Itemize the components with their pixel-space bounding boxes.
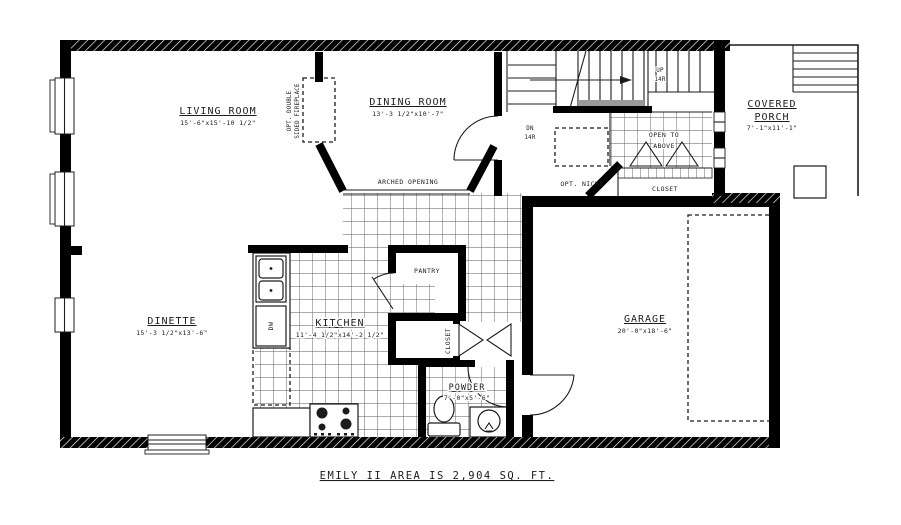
floor-plan-sheet: DW (0, 0, 901, 525)
hall-left-wall (494, 160, 502, 196)
stairs-up-risers: 14R (654, 77, 665, 83)
powder-dims: 7'-0"x5'-6" (444, 394, 490, 402)
foyer-closet-jamb-top (453, 313, 460, 324)
garage-left-wall-lower (522, 415, 533, 437)
garage-label: GARAGE (624, 314, 666, 325)
stair-lower-wall (553, 106, 652, 113)
garage-left-wall-upper (522, 196, 533, 375)
fireplace-label-line1: OPT. DOUBLE (287, 90, 293, 131)
floor-plan-drawing: DW (0, 0, 901, 525)
dinette-dims: 15'-3 1/2"x13'-6" (136, 329, 208, 337)
kitchen-top-wall (248, 245, 348, 253)
kitchen-counter-bottom (253, 408, 310, 437)
kitchen-label: KITCHEN (315, 318, 364, 329)
living-room-window-2 (50, 172, 74, 226)
dining-left-wall (315, 52, 323, 82)
dining-right-wall (494, 52, 502, 116)
opt-niche-label: OPT. NICHE (560, 180, 603, 188)
kitchen-dims: 11'-4 1/2"x14'-2 1/2" (296, 331, 384, 339)
sink-drain-top (270, 267, 273, 270)
living-room-dims: 15'-6"x15'-10 1/2" (180, 119, 256, 127)
pantry-left-wall-upper (388, 245, 396, 273)
powder-left-wall (418, 360, 426, 437)
garage-right-wall (769, 196, 780, 448)
covered-porch-label-line1: COVERED (747, 99, 796, 110)
living-room-label: LIVING ROOM (179, 106, 256, 117)
pantry-right-wall (458, 245, 466, 321)
covered-porch-label-line2: PORCH (754, 112, 789, 123)
powder-label: POWDER (449, 383, 486, 393)
dinette-bottom-window (145, 435, 209, 454)
top-exterior-wall (60, 40, 730, 51)
porch-column (794, 166, 826, 198)
open-to-above-line2: ABOVE (653, 142, 675, 150)
dinette-side-window (55, 298, 74, 332)
fireplace-label-line2: SIDED FIREPLACE (295, 83, 301, 139)
dinette-label: DINETTE (147, 316, 196, 327)
dining-room-dims: 13'-3 1/2"x10'-7" (372, 110, 444, 118)
foyer-closet-left-wall (388, 313, 396, 365)
porch-window-2 (714, 148, 725, 168)
open-to-above-tile-floor (610, 112, 712, 168)
stove-burner-small-1 (319, 424, 326, 431)
stove (310, 404, 358, 437)
pantry-top-wall (388, 245, 466, 253)
stairs-dn-risers: 14R (524, 135, 535, 141)
vanity-basin (478, 410, 500, 432)
covered-porch-dims: 7'-1"x11'-1" (747, 124, 798, 132)
hall-closet-shelf (618, 168, 712, 178)
dining-room-label: DINING ROOM (369, 97, 446, 108)
stairs-dn-label: DN (526, 126, 534, 132)
porch-window-1 (714, 112, 725, 132)
dishwasher-label: DW (267, 322, 275, 331)
sink-drain-bottom (270, 289, 273, 292)
stove-burner-large-2 (341, 419, 352, 430)
stairs-up-label: UP (656, 68, 664, 74)
corridor-tile-floor (343, 193, 522, 253)
foyer-tile-floor (460, 253, 522, 322)
open-to-above-line1: OPEN TO (649, 131, 679, 139)
hall-closet-label: CLOSET (652, 185, 678, 193)
plan-title: EMILY II AREA IS 2,904 SQ. FT. (320, 470, 555, 482)
garage-dims: 20'-0"x18'-6" (618, 327, 673, 335)
toilet-tank (428, 423, 460, 436)
arched-opening-label: ARCHED OPENING (378, 178, 438, 186)
powder-top-wall (418, 360, 475, 367)
stove-burner-small-2 (343, 408, 350, 415)
living-room-window-1 (50, 78, 74, 134)
powder-right-wall (506, 360, 514, 437)
foyer-closet-label: CLOSET (444, 328, 452, 354)
stove-burner-large-1 (317, 408, 328, 419)
pantry-tile-floor (395, 284, 435, 313)
pantry-label: PANTRY (414, 267, 440, 275)
